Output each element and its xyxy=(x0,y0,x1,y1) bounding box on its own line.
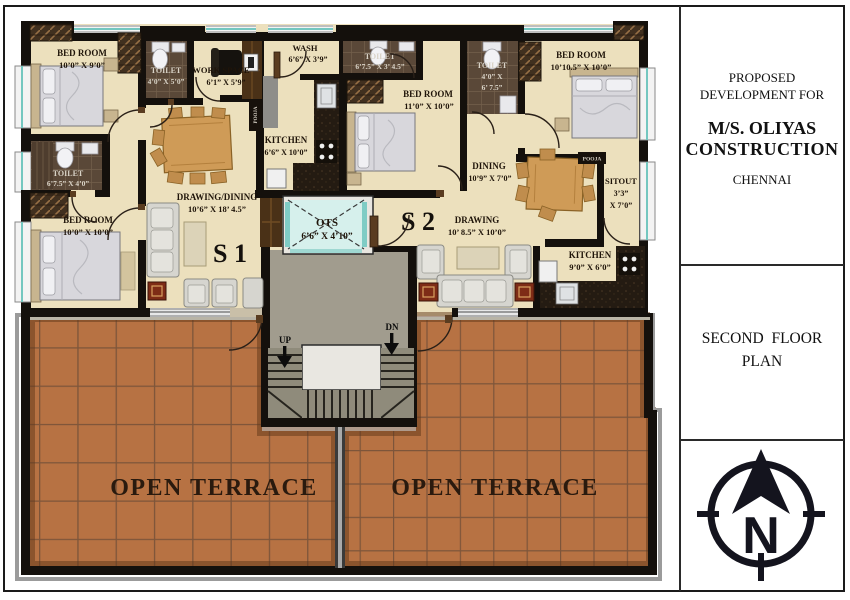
svg-text:10’0” X 10’0”: 10’0” X 10’0” xyxy=(63,227,113,237)
svg-text:WORK SPACE: WORK SPACE xyxy=(192,65,250,75)
svg-text:CONSTRUCTION: CONSTRUCTION xyxy=(685,139,838,159)
svg-text:X 7’0”: X 7’0” xyxy=(610,201,632,210)
svg-text:POOJA: POOJA xyxy=(254,106,259,123)
svg-text:6’7.5” X 4’0”: 6’7.5” X 4’0” xyxy=(47,179,90,188)
svg-text:KITCHEN: KITCHEN xyxy=(569,250,612,260)
svg-text:9’0” X 6’0”: 9’0” X 6’0” xyxy=(569,262,611,272)
svg-text:6’6” X 3’9”: 6’6” X 3’9” xyxy=(288,55,327,64)
svg-text:TOILET: TOILET xyxy=(53,169,84,178)
svg-text:BED ROOM: BED ROOM xyxy=(403,89,453,99)
svg-text:TOILET: TOILET xyxy=(477,61,508,70)
svg-text:BED ROOM: BED ROOM xyxy=(556,50,606,60)
svg-text:TOILET: TOILET xyxy=(151,66,182,75)
svg-text:KITCHEN: KITCHEN xyxy=(265,135,308,145)
svg-text:6’6” X 10’0”: 6’6” X 10’0” xyxy=(264,148,307,157)
svg-text:11’0” X 10’0”: 11’0” X 10’0” xyxy=(404,101,454,111)
svg-text:UP: UP xyxy=(279,335,291,345)
svg-text:POOJA: POOJA xyxy=(583,157,602,163)
svg-text:DINING: DINING xyxy=(472,161,506,171)
svg-text:6’ 7.5”: 6’ 7.5” xyxy=(482,83,503,92)
svg-text:WASH: WASH xyxy=(292,43,317,53)
svg-text:PROPOSED: PROPOSED xyxy=(729,70,795,85)
svg-text:PLAN: PLAN xyxy=(742,353,782,370)
svg-text:4’0” X: 4’0” X xyxy=(481,72,503,81)
svg-text:N: N xyxy=(742,507,780,565)
svg-text:3’3”: 3’3” xyxy=(614,189,629,198)
svg-text:10’9” X 7’0”: 10’9” X 7’0” xyxy=(468,174,511,183)
svg-text:10’10.5” X 10’0”: 10’10.5” X 10’0” xyxy=(551,62,612,72)
svg-text:OTS: OTS xyxy=(316,217,338,229)
svg-text:10’6” X 18’ 4.5”: 10’6” X 18’ 4.5” xyxy=(188,204,246,214)
svg-text:S 1: S 1 xyxy=(213,239,247,268)
svg-text:CHENNAI: CHENNAI xyxy=(733,172,792,187)
svg-text:6’6” X 4’10”: 6’6” X 4’10” xyxy=(301,232,352,242)
svg-text:SITOUT: SITOUT xyxy=(605,176,637,186)
svg-text:BED ROOM: BED ROOM xyxy=(57,48,107,58)
svg-text:6’7.5” X 3’ 4.5”: 6’7.5” X 3’ 4.5” xyxy=(355,62,404,71)
svg-text:DRAWING: DRAWING xyxy=(455,215,500,225)
svg-text:4’0” X 5’0”: 4’0” X 5’0” xyxy=(148,77,185,86)
svg-text:DRAWING/DINING: DRAWING/DINING xyxy=(177,192,258,202)
svg-text:6’1” X 5’9”: 6’1” X 5’9” xyxy=(206,78,245,87)
svg-text:SECOND FLOOR: SECOND FLOOR xyxy=(702,330,823,347)
svg-text:10’ 8.5” X 10’0”: 10’ 8.5” X 10’0” xyxy=(448,227,506,237)
svg-text:S 2: S 2 xyxy=(401,207,435,236)
svg-text:M/S. OLIYAS: M/S. OLIYAS xyxy=(708,118,816,138)
svg-text:10’0” X 9’0”: 10’0” X 9’0” xyxy=(59,60,105,70)
svg-text:DEVELOPMENT FOR: DEVELOPMENT FOR xyxy=(700,87,825,102)
svg-text:OPEN TERRACE: OPEN TERRACE xyxy=(391,475,599,501)
svg-text:DN: DN xyxy=(386,322,399,332)
svg-text:OPEN TERRACE: OPEN TERRACE xyxy=(110,475,318,501)
